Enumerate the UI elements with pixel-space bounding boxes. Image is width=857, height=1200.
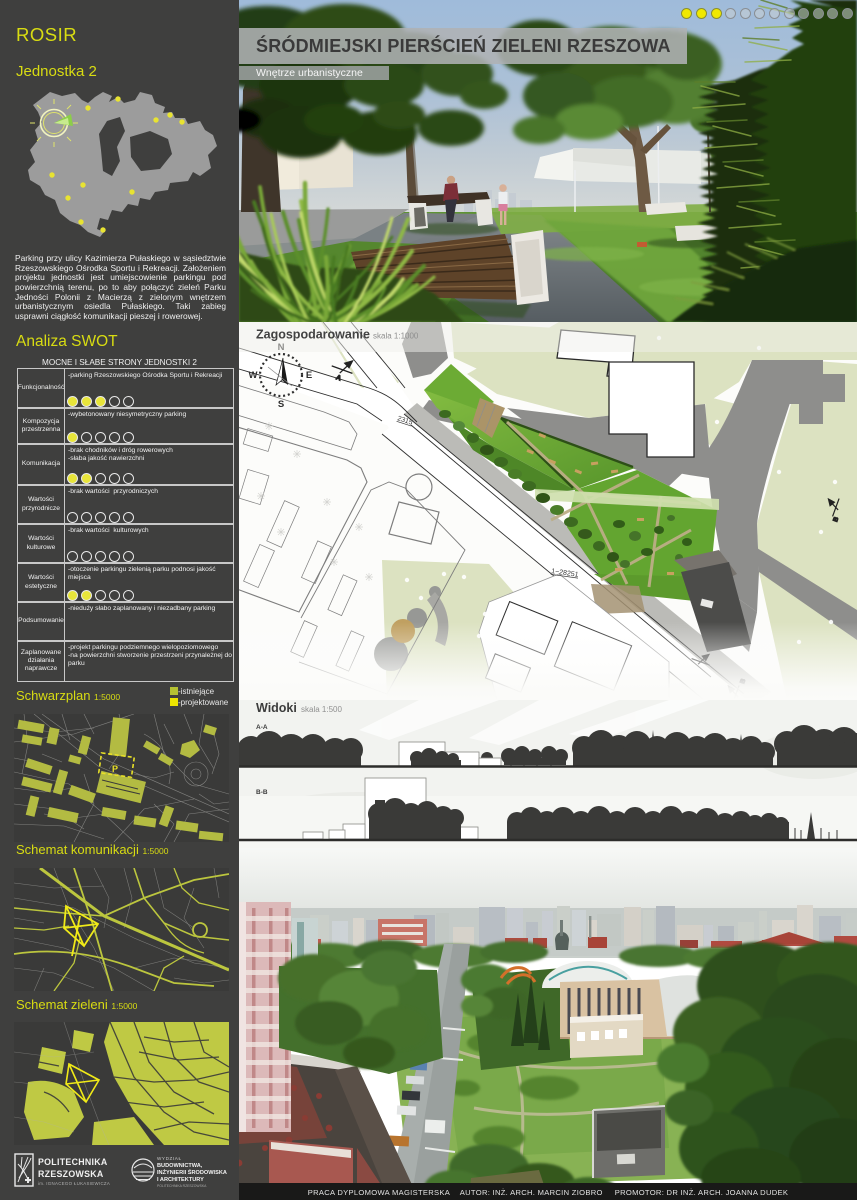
svg-text:im. IGNACEGO ŁUKASIEWICZA: im. IGNACEGO ŁUKASIEWICZA bbox=[38, 1181, 110, 1186]
svg-text:skala 1:500: skala 1:500 bbox=[301, 705, 342, 714]
svg-text:BUDOWNICTWA,: BUDOWNICTWA, bbox=[157, 1163, 203, 1169]
svg-text:Zagospodarowanie: Zagospodarowanie bbox=[256, 328, 370, 342]
svg-text:B-B: B-B bbox=[256, 789, 268, 796]
svg-text:I ARCHITEKTURY: I ARCHITEKTURY bbox=[157, 1177, 204, 1183]
svg-text:INŻYNIERII ŚRODOWISKA: INŻYNIERII ŚRODOWISKA bbox=[157, 1169, 227, 1176]
svg-text:POLITECHNIKA RZESZOWSKA: POLITECHNIKA RZESZOWSKA bbox=[157, 1184, 207, 1188]
svg-text:S: S bbox=[278, 399, 284, 410]
svg-text:WYDZIAŁ: WYDZIAŁ bbox=[157, 1156, 182, 1161]
svg-text:W: W bbox=[249, 370, 258, 381]
svg-text:P: P bbox=[112, 764, 118, 774]
svg-text:skala 1:1000: skala 1:1000 bbox=[373, 332, 419, 341]
svg-text:Widoki: Widoki bbox=[256, 701, 297, 715]
svg-text:POLITECHNIKA: POLITECHNIKA bbox=[38, 1157, 108, 1167]
svg-text:A-A: A-A bbox=[256, 724, 268, 731]
svg-text:E: E bbox=[306, 370, 312, 381]
svg-text:RZESZOWSKA: RZESZOWSKA bbox=[38, 1169, 104, 1179]
